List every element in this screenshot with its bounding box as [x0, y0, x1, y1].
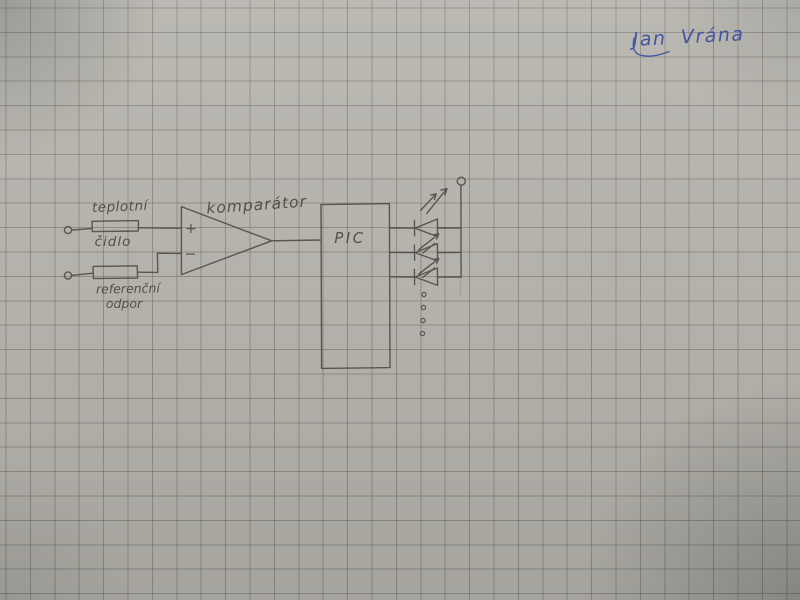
pencil-lettering: teplotní čidlo referenční odpor komparát…: [92, 192, 366, 311]
led-triangle-icon: [415, 244, 438, 261]
label-sensor-line1: teplotní: [92, 198, 150, 216]
label-mcu: PIC: [334, 229, 365, 247]
temperature-sensor-resistor: [92, 221, 139, 232]
opamp-triangle-icon: [181, 207, 271, 275]
wire: [72, 273, 93, 275]
graph-paper-photo: teplotní čidlo referenční odpor komparát…: [0, 0, 800, 600]
comparator-opamp: [181, 207, 271, 275]
input-terminal-top: [64, 226, 92, 233]
terminal-circle-icon: [64, 272, 71, 279]
supply-terminal-circle-icon: [457, 177, 465, 185]
supply-rail: [457, 177, 465, 277]
terminal-circle-icon: [64, 226, 71, 233]
eraser-smudge: [460, 278, 461, 295]
wire: [72, 229, 92, 230]
input-terminal-bottom: [64, 272, 93, 279]
led-3: [390, 268, 461, 285]
wire-reference-to-comparator: [138, 253, 182, 272]
wire-comparator-to-pic: [272, 240, 321, 241]
circuit-sketch: teplotní čidlo referenční odpor komparát…: [0, 0, 800, 600]
signature-text: Jan Vrána: [628, 23, 745, 51]
signature: Jan Vrána: [628, 23, 745, 56]
resistor-box-icon: [93, 266, 138, 279]
led-triangle-icon: [415, 268, 438, 285]
label-comparator: komparátor: [206, 192, 308, 217]
comparator-minus-sign: −: [185, 247, 197, 263]
led-1-emission-arrows-icon: [421, 189, 447, 214]
reference-resistor: [93, 266, 138, 279]
led-1: [390, 219, 461, 237]
led-2: [390, 244, 461, 261]
comparator-plus-sign: +: [185, 221, 197, 237]
label-reference-line1: referenční: [96, 280, 162, 296]
label-reference-line2: odpor: [106, 296, 143, 311]
label-sensor-line2: čidlo: [95, 234, 132, 250]
continuation-dots-icon: [420, 292, 426, 335]
resistor-box-icon: [92, 221, 139, 232]
